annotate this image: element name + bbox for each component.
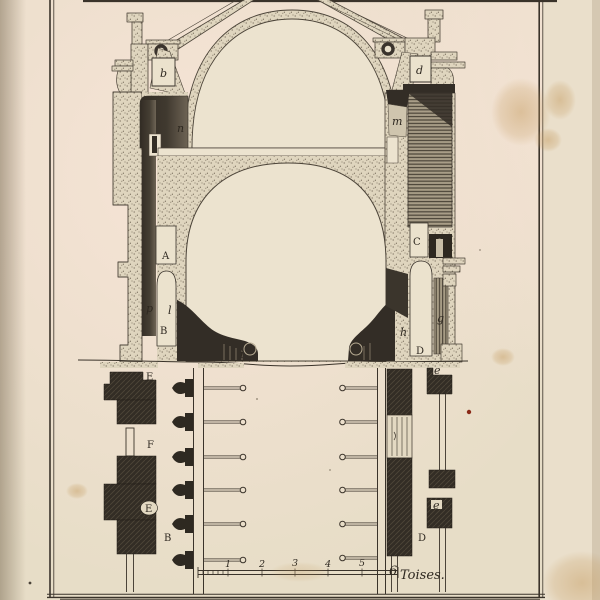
scale-tick-2: 2 bbox=[258, 559, 265, 570]
label-l: l bbox=[168, 304, 172, 317]
label-h: h bbox=[400, 326, 407, 339]
red-fleck bbox=[467, 410, 471, 414]
label-C: C bbox=[413, 237, 421, 248]
scale-tick-1: 1 bbox=[225, 559, 231, 570]
label-m: m bbox=[392, 115, 402, 128]
plan-label-E-top: E bbox=[146, 372, 153, 383]
engraving-plate: b d n m A p l B i C h g D bbox=[0, 0, 600, 600]
label-g: g bbox=[437, 312, 444, 325]
plan-label-F: F bbox=[147, 440, 154, 451]
label-A: A bbox=[161, 251, 170, 262]
label-D: D bbox=[416, 346, 424, 357]
label-b: b bbox=[160, 67, 167, 80]
right-corbel-ring bbox=[383, 44, 393, 54]
plan-label-E-oval: E bbox=[145, 504, 152, 515]
plan-label-e-mid: e bbox=[433, 499, 440, 512]
main-arch-opening bbox=[186, 163, 386, 361]
plan-label-e-top: e bbox=[434, 364, 441, 377]
plan-label-D: D bbox=[418, 533, 426, 544]
scale-tick-6: 6 bbox=[389, 564, 397, 579]
label-n: n bbox=[177, 122, 184, 135]
plan-label-B: B bbox=[164, 533, 171, 544]
label-i: i bbox=[240, 348, 244, 361]
label-B: B bbox=[160, 326, 167, 337]
scale-unit-label: Toises. bbox=[400, 568, 445, 583]
label-d: d bbox=[416, 64, 423, 77]
foxing-stain-mid bbox=[491, 348, 515, 366]
scale-tick-5: 5 bbox=[359, 558, 365, 569]
niche-D bbox=[410, 261, 432, 356]
foxing-stain-left bbox=[66, 483, 88, 499]
ink-speck bbox=[29, 582, 32, 585]
scanned-engraving-page: b d n m A p l B i C h g D bbox=[0, 0, 600, 600]
label-p: p bbox=[146, 302, 153, 315]
cross-section-drawing: b d n m A p l B i C h g D bbox=[78, 0, 468, 368]
